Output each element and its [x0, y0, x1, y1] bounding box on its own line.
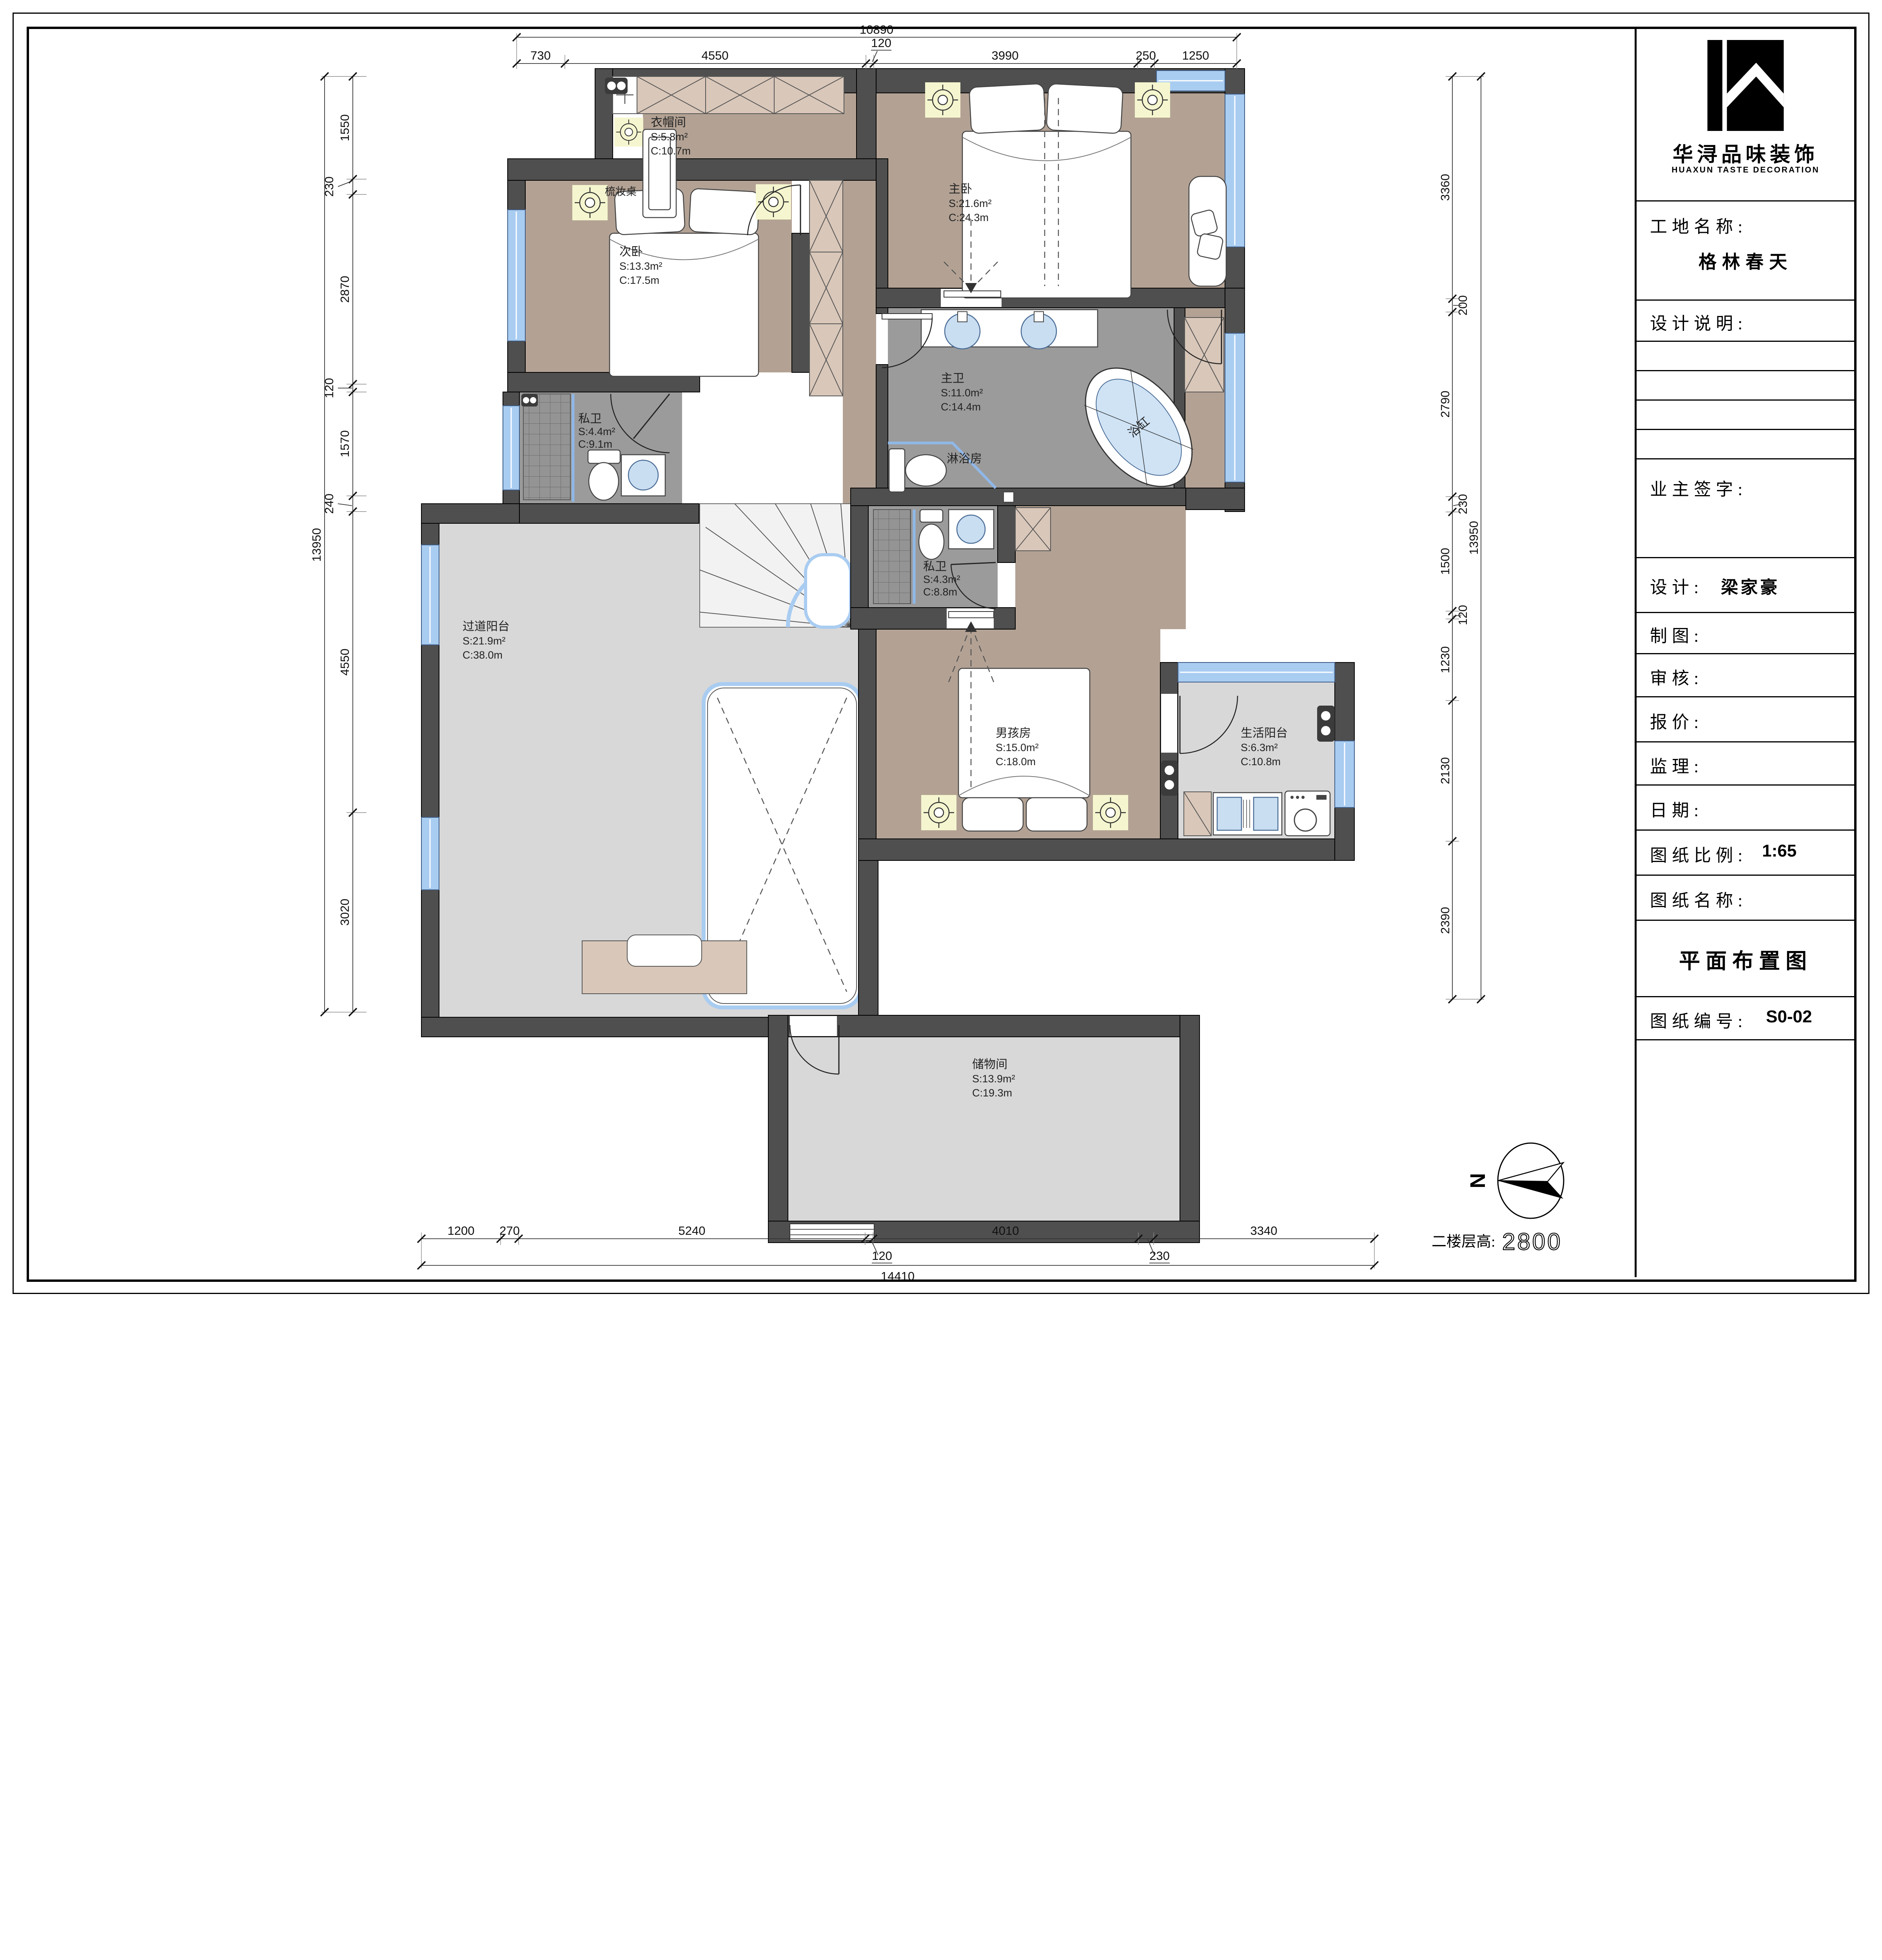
room-area: S:4.4m²: [578, 426, 615, 437]
wall-segment: [858, 629, 876, 860]
dim-seg: 230: [1456, 494, 1470, 514]
cabinet-half-x: [1184, 792, 1211, 836]
sink: [949, 510, 994, 549]
room-area: S:11.0m²: [941, 387, 983, 399]
room-circ: C:10.7m: [651, 145, 691, 157]
sheet-name-value-row: 平面布置图: [1637, 921, 1855, 997]
company-name-cn: 华浔品味装饰: [1637, 138, 1855, 167]
floor-height-label: 二楼层高:: [1432, 1234, 1495, 1250]
wall-segment: [1180, 1015, 1200, 1243]
wall-speaker-box: [605, 78, 628, 94]
room-name: 主卧: [949, 183, 972, 196]
room-name: 过道阳台: [463, 620, 510, 633]
wall-segment: [858, 860, 878, 1017]
dim-total: 13950: [310, 528, 323, 562]
sheet-name-label: 图纸名称:: [1650, 886, 1747, 911]
dim-seg: 3990: [992, 49, 1019, 62]
room-area: S:21.9m²: [463, 635, 506, 647]
designer-label: 设计:: [1650, 573, 1703, 598]
room-name: 储物间: [972, 1058, 1007, 1071]
empty-row: [1637, 342, 1855, 371]
dim-total: 14410: [881, 1269, 915, 1283]
window: [1225, 94, 1245, 247]
dim-seg: 1250: [1182, 49, 1209, 62]
room-circ: C:24.3m: [949, 212, 989, 223]
date-label: 日期:: [1650, 796, 1703, 821]
dim-seg: 270: [499, 1224, 520, 1238]
wall-speaker-box: [1161, 760, 1178, 796]
wardrobe-x-cell: [706, 76, 774, 114]
wall-segment: [421, 1017, 788, 1037]
shower-tile: [523, 394, 570, 500]
room-circ: C:19.3m: [972, 1087, 1012, 1099]
room-name: 次卧: [619, 245, 643, 258]
room-name: 主卫: [941, 372, 964, 385]
sheet-number-value: S0-02: [1766, 1007, 1812, 1027]
room-circ: C:10.8m: [1241, 756, 1281, 768]
designer-row: 设计: 梁家豪: [1637, 558, 1855, 613]
room-area: S:4.3m²: [923, 573, 960, 585]
dim-seg: 2870: [338, 276, 352, 303]
review-row: 审核:: [1637, 654, 1855, 697]
room-area: S:13.3m²: [619, 260, 662, 272]
dim-seg: 2130: [1438, 757, 1452, 784]
title-block: 华浔品味装饰 HUAXUN TASTE DECORATION 工地名称: 格林春…: [1635, 29, 1855, 1277]
sheet-name-value: 平面布置图: [1637, 944, 1855, 975]
room-name: 生活阳台: [1241, 727, 1288, 740]
window: [508, 210, 525, 341]
wall-segment: [857, 69, 876, 159]
dim-seg: 1230: [1438, 646, 1452, 673]
wall-speaker-box: [1317, 706, 1335, 742]
sheet-number-row: 图纸编号: S0-02: [1637, 997, 1855, 1040]
door-gap: [1161, 694, 1177, 753]
wardrobe-x-cell: [1185, 318, 1224, 392]
floor-drain: [1004, 492, 1014, 502]
room-name: 衣帽间: [651, 116, 686, 129]
dim-seg: 230: [322, 176, 336, 197]
dim-seg: 4550: [338, 649, 352, 676]
wardrobe-x-cell: [809, 180, 843, 252]
window: [421, 545, 439, 645]
dim-seg: 4550: [702, 49, 729, 62]
notes-row: 说明: 所有尺寸均须实地核对， 不以量度图中尺寸作准 此图纸未经盖章签名均 属无…: [1637, 1040, 1855, 1277]
hall-floor: [843, 180, 876, 504]
dim-seg: 1500: [1438, 548, 1452, 575]
dim-seg: 120: [872, 1249, 892, 1263]
wardrobe-x-cell: [809, 252, 843, 324]
ceiling-halo: [921, 795, 956, 830]
room-name: 私卫: [923, 560, 947, 573]
wall-segment: [1186, 488, 1245, 510]
dim-seg: 2790: [1438, 391, 1452, 418]
room-area: S:13.9m²: [972, 1073, 1015, 1085]
dim-seg: 120: [871, 36, 891, 50]
wall-segment: [858, 839, 1354, 860]
toilet: [588, 450, 620, 500]
sheet-name-row: 图纸名称:: [1637, 876, 1855, 921]
wall-segment: [503, 504, 699, 523]
scale-label: 图纸比例:: [1650, 841, 1747, 866]
wardrobe-x-cell: [774, 76, 844, 114]
owner-sign-row: 业主签字:: [1637, 459, 1855, 558]
dressing-table-label: 梳妆桌: [605, 186, 637, 198]
dim-seg: 240: [322, 494, 336, 514]
empty-row: [1637, 401, 1855, 430]
review-label: 审核:: [1650, 664, 1703, 689]
quote-row: 报价:: [1637, 697, 1855, 742]
window: [1335, 741, 1354, 808]
date-row: 日期:: [1637, 786, 1855, 831]
wall-segment: [421, 504, 519, 523]
dim-seg: 1550: [338, 114, 352, 142]
wall-segment: [876, 365, 888, 488]
door-gap: [790, 1016, 837, 1036]
cabinet-seat: [627, 935, 702, 966]
draft-label: 制图:: [1650, 622, 1703, 647]
laundry-sink: [1213, 793, 1282, 835]
site-name-label: 工地名称:: [1650, 212, 1747, 238]
dim-seg: 120: [322, 378, 336, 398]
master-bed: [962, 83, 1131, 298]
ceiling-halo: [614, 118, 643, 147]
dim-seg: 2390: [1438, 907, 1452, 934]
dim-seg: 730: [530, 49, 551, 62]
window: [503, 406, 519, 490]
room-circ: C:8.8m: [923, 586, 957, 598]
dim-seg: 3020: [338, 899, 352, 926]
ceiling-halo: [1093, 795, 1128, 830]
design-notes-row: 设计说明:: [1637, 301, 1855, 342]
room-circ: C:17.5m: [619, 274, 659, 286]
window: [1178, 662, 1335, 682]
dim-seg: 120: [1456, 605, 1470, 625]
room-circ: C:18.0m: [996, 756, 1036, 768]
double-vanity: [921, 310, 1098, 349]
room-circ: C:14.4m: [941, 401, 981, 413]
ceiling-halo: [1135, 82, 1170, 118]
toilet: [919, 510, 944, 559]
washing-machine: [1285, 791, 1330, 836]
dim-seg: 1570: [338, 430, 352, 457]
site-name-value: 格林春天: [1637, 248, 1855, 274]
dim-seg: 3360: [1438, 174, 1452, 201]
dim-chain-top: 10890 730 4550 120 3990 250 1250: [513, 23, 1241, 69]
wardrobe-x-cell: [1015, 508, 1051, 551]
window: [421, 817, 439, 890]
wardrobe-x-cell: [637, 76, 706, 114]
dim-seg: 5240: [679, 1224, 706, 1238]
wardrobe-x-cell: [809, 324, 843, 396]
floor-height-value: 2800: [1502, 1229, 1562, 1255]
window: [1225, 333, 1245, 482]
shower-tile: [873, 510, 911, 604]
site-name-row: 工地名称: 格林春天: [1637, 201, 1855, 301]
threshold: [949, 612, 994, 618]
room-circ: C:38.0m: [463, 649, 503, 661]
ceiling-halo: [925, 82, 960, 118]
dim-seg: 250: [1136, 49, 1156, 62]
scale-value: 1:65: [1762, 841, 1797, 861]
supervision-row: 监理:: [1637, 742, 1855, 786]
window: [790, 1224, 874, 1240]
room-name: 私卫: [578, 412, 602, 425]
room-area: S:15.0m²: [996, 742, 1039, 753]
company-logo-icon: [1704, 40, 1787, 131]
sheet-number-label: 图纸编号:: [1650, 1007, 1747, 1032]
dim-seg: 1200: [448, 1224, 475, 1238]
compass: N 二楼层高: 2800: [1432, 1143, 1564, 1255]
dim-chain-left: 13950 1550 230 2870 120 1570 240 4550 30…: [310, 73, 367, 1016]
design-notes-label: 设计说明:: [1650, 309, 1747, 334]
ceiling-halo: [572, 185, 608, 220]
company-name-en: HUAXUN TASTE DECORATION: [1637, 165, 1855, 175]
dim-total: 13950: [1467, 521, 1481, 555]
room-circ: C:9.1m: [578, 438, 612, 450]
stair: [694, 480, 851, 627]
designer-value: 梁家豪: [1721, 573, 1780, 598]
wall-segment: [792, 233, 809, 372]
sink: [621, 455, 665, 496]
stair-handrail: [806, 555, 851, 627]
empty-row: [1637, 371, 1855, 401]
supervision-label: 监理:: [1650, 752, 1703, 777]
draft-row: 制图:: [1637, 613, 1855, 654]
owner-sign-label: 业主签字:: [1650, 475, 1747, 500]
threshold: [944, 291, 1001, 297]
shower-room-label: 淋浴房: [947, 452, 982, 465]
room-area: S:21.6m²: [949, 198, 992, 209]
dim-seg: 3340: [1250, 1224, 1278, 1238]
scale-row: 图纸比例: 1:65: [1637, 831, 1855, 876]
wall-segment: [508, 159, 876, 180]
dim-chain-right: 13950 3360 200 2790 230 1500 120 1230 21…: [1438, 73, 1485, 1003]
wall-segment: [508, 180, 525, 210]
wall-segment: [768, 1015, 788, 1243]
room-name: 男孩房: [996, 727, 1031, 740]
dim-seg: 4010: [992, 1224, 1019, 1238]
room-area: S:5.8m²: [651, 131, 688, 143]
north-label: N: [1466, 1173, 1490, 1189]
wall-segment: [998, 506, 1015, 563]
floor-plan: 浴缸: [0, 0, 1882, 1307]
empty-row: [1637, 430, 1855, 459]
chaise: [1189, 176, 1226, 286]
quote-label: 报价:: [1650, 708, 1703, 733]
dim-total: 10890: [860, 23, 893, 36]
room-area: S:6.3m²: [1241, 742, 1278, 753]
wall-speaker-box: [521, 394, 538, 407]
logo-row: 华浔品味装饰 HUAXUN TASTE DECORATION: [1637, 29, 1855, 201]
